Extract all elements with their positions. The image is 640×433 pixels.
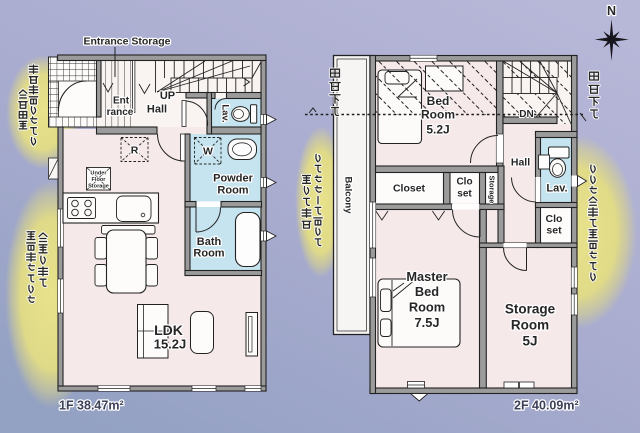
svg-text:Room: Room	[409, 299, 445, 314]
svg-text:7.5J: 7.5J	[415, 315, 440, 330]
svg-text:Master: Master	[406, 269, 447, 284]
svg-text:15.2J: 15.2J	[154, 337, 187, 352]
svg-text:Storage: Storage	[88, 183, 109, 189]
svg-text:Entrance Storage: Entrance Storage	[84, 36, 171, 48]
svg-text:Room: Room	[193, 247, 224, 259]
svg-text:W: W	[203, 146, 213, 158]
svg-text:LDK: LDK	[154, 322, 183, 338]
svg-text:R: R	[131, 145, 139, 157]
svg-text:Storage: Storage	[505, 302, 556, 317]
svg-text:Bed: Bed	[427, 94, 450, 108]
svg-text:Room: Room	[511, 318, 549, 333]
svg-text:Lav.: Lav.	[220, 104, 231, 122]
svg-text:Clo: Clo	[456, 177, 472, 188]
svg-text:Closet: Closet	[393, 183, 426, 195]
svg-text:UP: UP	[160, 90, 175, 102]
svg-text:Clo: Clo	[546, 213, 563, 225]
svg-text:Room: Room	[217, 184, 248, 196]
svg-text:5.2J: 5.2J	[426, 123, 449, 137]
svg-text:Bath: Bath	[197, 236, 222, 248]
svg-text:Hall: Hall	[147, 103, 167, 115]
svg-text:N: N	[607, 4, 616, 18]
svg-text:1F 38.47m²: 1F 38.47m²	[59, 398, 124, 412]
svg-text:Storage: Storage	[487, 176, 496, 204]
svg-text:Bed: Bed	[415, 284, 439, 299]
svg-text:Hall: Hall	[511, 157, 530, 169]
svg-text:set: set	[457, 189, 472, 200]
svg-text:rance: rance	[107, 107, 134, 118]
svg-text:Floor: Floor	[92, 177, 107, 183]
svg-text:Ent: Ent	[113, 96, 130, 107]
svg-text:Under: Under	[90, 170, 107, 176]
svg-text:set: set	[546, 225, 562, 237]
svg-text:Room: Room	[421, 108, 455, 122]
svg-text:Balcony: Balcony	[343, 177, 354, 215]
svg-text:5J: 5J	[522, 334, 537, 349]
svg-text:DN: DN	[519, 109, 533, 120]
svg-text:Lav.: Lav.	[546, 182, 567, 194]
svg-text:Powder: Powder	[213, 172, 253, 184]
svg-text:2F 40.09m²: 2F 40.09m²	[514, 398, 579, 412]
